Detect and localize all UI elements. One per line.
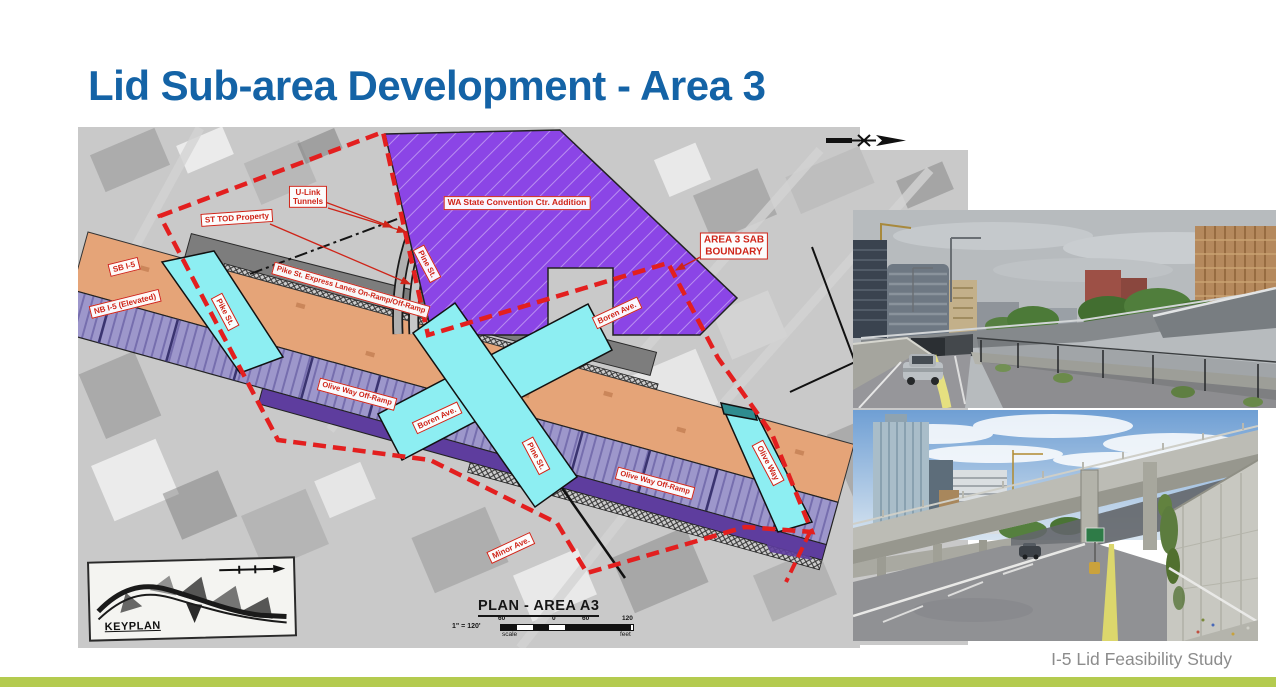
photo1-graphic — [853, 210, 1276, 408]
scale-caption-right: feet — [620, 631, 631, 638]
page-title: Lid Sub-area Development - Area 3 — [88, 62, 765, 110]
keyplan-label: KEYPLAN — [105, 620, 161, 633]
slide: Lid Sub-area Development - Area 3 — [0, 0, 1276, 688]
north-arrow-icon — [824, 131, 908, 149]
scale-ratio: 1" = 120' — [452, 623, 481, 630]
scale-tick: 120 — [622, 615, 633, 622]
keyplan-inset: KEYPLAN — [87, 556, 297, 641]
scale-tick: 0 — [552, 615, 556, 622]
map-label-convention-center: WA State Convention Ctr. Addition — [444, 196, 591, 210]
scale-tick: 60 — [582, 615, 589, 622]
scale-bar — [500, 624, 634, 631]
area3-plan-map: ST TOD Property U-Link Tunnels WA State … — [78, 127, 970, 648]
photo-i5-under-overpass — [853, 410, 1258, 641]
bottom-accent-bar — [0, 677, 1276, 687]
photo2-graphic — [853, 410, 1258, 641]
map-label-u-link-tunnels: U-Link Tunnels — [289, 186, 327, 208]
scale-caption-left: scale — [502, 631, 517, 638]
photo-express-lanes-street-view — [853, 210, 1276, 408]
plan-title-block: PLAN - AREA A3 1" = 120' 60 0 60 120 sca… — [452, 598, 682, 644]
scale-tick: 60 — [498, 615, 505, 622]
footer-text: I-5 Lid Feasibility Study — [1051, 649, 1232, 670]
map-label-area3-sab-boundary: AREA 3 SAB BOUNDARY — [700, 233, 768, 260]
